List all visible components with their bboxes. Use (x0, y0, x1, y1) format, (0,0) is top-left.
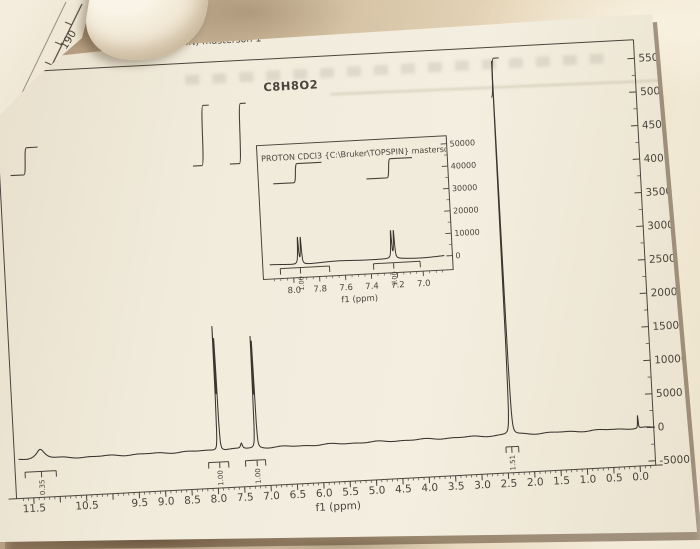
svg-text:1.00: 1.00 (390, 271, 399, 286)
svg-text:50000: 50000 (449, 138, 475, 148)
svg-text:7.6: 7.6 (339, 283, 353, 294)
svg-text:5.0: 5.0 (368, 484, 385, 497)
svg-text:f1 (ppm): f1 (ppm) (341, 294, 378, 306)
svg-text:10.5: 10.5 (75, 499, 99, 512)
plot-tilt-wrap: 11.510.59.59.08.58.07.57.06.56.05.55.04.… (0, 0, 700, 549)
svg-text:1.00: 1.00 (297, 276, 306, 291)
svg-text:7.5: 7.5 (237, 491, 254, 504)
svg-text:9.0: 9.0 (158, 495, 175, 508)
svg-text:7.0: 7.0 (417, 279, 431, 290)
svg-text:0.5: 0.5 (606, 472, 623, 485)
svg-text:f1 (ppm): f1 (ppm) (315, 500, 361, 514)
svg-text:7.0: 7.0 (263, 490, 280, 503)
svg-text:2.5: 2.5 (500, 478, 517, 491)
svg-text:4.0: 4.0 (421, 482, 438, 495)
svg-text:3.0: 3.0 (474, 479, 491, 492)
svg-text:10000: 10000 (454, 228, 480, 238)
svg-text:1.0: 1.0 (579, 473, 596, 486)
svg-text:1.51: 1.51 (509, 455, 518, 471)
svg-text:6.0: 6.0 (316, 487, 333, 500)
svg-text:0: 0 (455, 251, 461, 260)
svg-text:0.35: 0.35 (38, 479, 47, 495)
svg-text:0.0: 0.0 (632, 471, 649, 484)
svg-text:30000: 30000 (452, 183, 478, 193)
spectrum-paper: 11.510.59.59.08.58.07.57.06.56.05.55.04.… (0, 0, 700, 549)
svg-text:7.4: 7.4 (365, 281, 379, 292)
nmr-spectrum-plot: 11.510.59.59.08.58.07.57.06.56.05.55.04.… (0, 0, 700, 549)
formula-label: C8H8O2 (263, 77, 319, 94)
svg-text:8.5: 8.5 (184, 494, 201, 507)
svg-text:5000: 5000 (656, 387, 683, 400)
svg-text:5.5: 5.5 (342, 486, 359, 499)
svg-text:-5000: -5000 (659, 454, 690, 468)
svg-text:4.5: 4.5 (395, 483, 412, 496)
svg-text:8.0: 8.0 (210, 493, 227, 506)
svg-text:11.5: 11.5 (22, 502, 46, 515)
svg-text:0: 0 (657, 421, 664, 433)
photo-scene: 11.510.59.59.08.58.07.57.06.56.05.55.04.… (0, 0, 700, 549)
svg-text:1.00: 1.00 (254, 468, 263, 484)
svg-text:1.5: 1.5 (553, 475, 570, 488)
svg-text:7.8: 7.8 (313, 284, 327, 295)
svg-text:3.5: 3.5 (448, 480, 465, 493)
svg-text:40000: 40000 (451, 161, 477, 171)
main-integral-curves: 0.351.001.001.51 (5, 58, 521, 496)
svg-text:2.0: 2.0 (527, 476, 544, 489)
svg-text:1.00: 1.00 (217, 470, 226, 486)
svg-text:6.5: 6.5 (289, 489, 306, 502)
svg-text:20000: 20000 (453, 205, 479, 215)
svg-text:9.5: 9.5 (131, 497, 148, 510)
